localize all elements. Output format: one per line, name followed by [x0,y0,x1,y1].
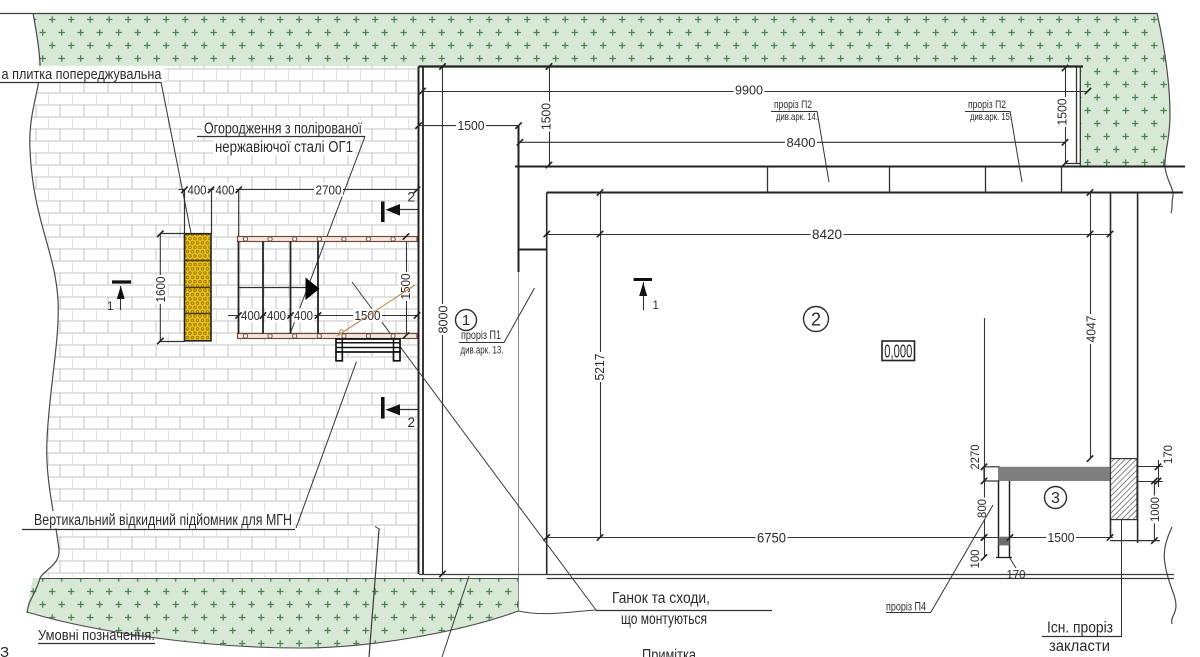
svg-text:проріз П2: проріз П2 [774,99,812,111]
svg-text:0,000: 0,000 [884,342,912,362]
svg-text:1500: 1500 [1055,99,1070,126]
svg-text:Ганок та сходи,: Ганок та сходи, [612,590,710,607]
svg-text:3: 3 [1051,490,1060,507]
svg-text:1000: 1000 [1148,497,1162,522]
svg-text:8000: 8000 [436,306,451,334]
svg-text:2: 2 [811,309,821,329]
svg-text:9900: 9900 [735,83,763,98]
svg-text:100: 100 [968,549,982,568]
svg-text:закласти: закласти [1049,638,1110,655]
svg-text:Огородження з полірованої: Огородження з полірованої [204,120,363,137]
svg-text:2: 2 [408,190,416,205]
svg-text:1: 1 [462,312,470,329]
svg-text:проріз П1: проріз П1 [461,330,501,342]
svg-text:6750: 6750 [757,529,786,545]
svg-text:2270: 2270 [968,444,982,469]
svg-text:що монтуються: що монтуються [621,611,707,628]
svg-text:Вертикальний відкидний підйомн: Вертикальний відкидний підйомник для МГН [34,512,292,529]
svg-text:5217: 5217 [592,354,607,381]
svg-text:400: 400 [294,308,313,323]
svg-text:Умовні позначення:: Умовні позначення: [38,627,155,644]
svg-text:а плитка попереджувальна: а плитка попереджувальна [2,66,163,83]
svg-text:нержавіючої сталі ОГ1: нержавіючої сталі ОГ1 [215,139,353,156]
svg-text:див.арк. 14.: див.арк. 14. [776,111,818,123]
svg-text:З: З [0,644,9,657]
svg-text:1500: 1500 [398,274,413,300]
svg-text:400: 400 [267,308,286,323]
svg-text:170: 170 [1161,445,1175,464]
svg-text:400: 400 [188,182,207,197]
svg-text:2700: 2700 [316,182,342,197]
svg-text:1500: 1500 [458,118,485,133]
svg-text:1500: 1500 [539,103,554,130]
svg-text:див.арк. 15.: див.арк. 15. [970,111,1012,123]
svg-text:400: 400 [241,308,260,323]
svg-text:проріз П4: проріз П4 [886,602,926,614]
svg-text:170: 170 [1007,568,1026,582]
svg-text:400: 400 [216,182,235,197]
svg-text:1600: 1600 [153,277,168,303]
svg-text:1500: 1500 [1048,530,1075,545]
svg-text:1: 1 [107,301,113,313]
svg-text:2: 2 [408,415,416,430]
svg-text:проріз П2: проріз П2 [968,99,1006,111]
svg-text:8400: 8400 [787,135,816,150]
svg-text:4047: 4047 [1084,316,1099,343]
svg-text:Існ. проріз: Існ. проріз [1047,619,1113,636]
svg-text:8420: 8420 [812,226,842,242]
svg-text:1: 1 [653,300,659,312]
svg-text:Примітка: Примітка [642,647,696,657]
svg-text:див.арк. 13.: див.арк. 13. [461,344,504,356]
